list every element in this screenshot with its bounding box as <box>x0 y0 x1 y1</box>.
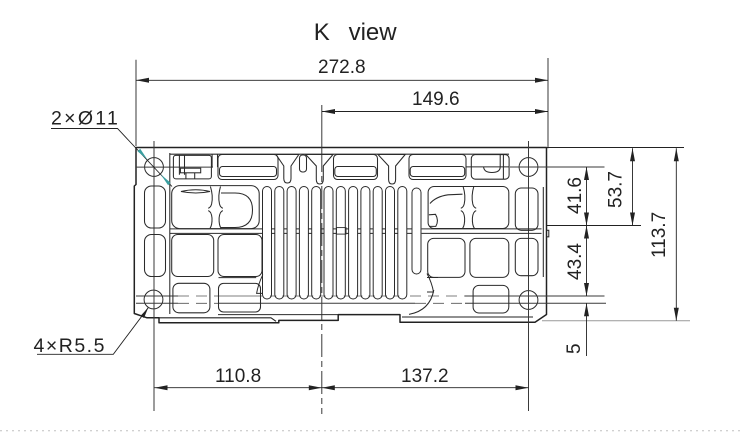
svg-text:2×Ø11: 2×Ø11 <box>51 107 120 129</box>
svg-text:272.8: 272.8 <box>318 57 366 78</box>
svg-text:K: K <box>314 19 330 46</box>
svg-text:110.8: 110.8 <box>215 366 261 387</box>
svg-text:5: 5 <box>564 343 585 354</box>
svg-text:149.6: 149.6 <box>412 89 460 110</box>
svg-text:4×R5.5: 4×R5.5 <box>34 335 106 357</box>
svg-text:53.7: 53.7 <box>606 171 627 208</box>
svg-text:41.6: 41.6 <box>565 177 586 214</box>
svg-text:113.7: 113.7 <box>649 212 670 258</box>
svg-text:view: view <box>349 19 398 46</box>
svg-text:137.2: 137.2 <box>401 366 449 387</box>
svg-text:43.4: 43.4 <box>565 243 586 280</box>
